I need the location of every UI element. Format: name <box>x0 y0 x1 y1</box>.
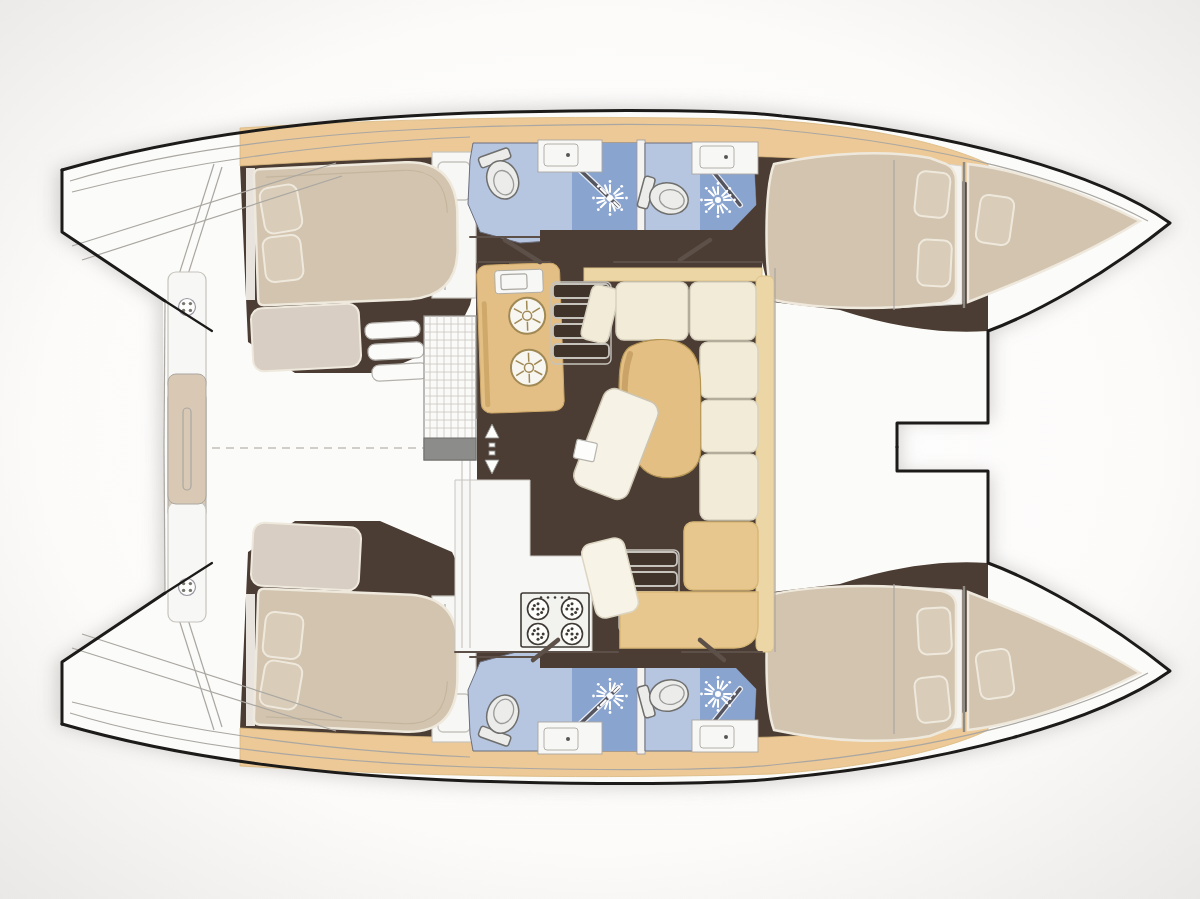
floor-plan-canvas <box>0 0 1200 899</box>
salon <box>455 230 775 668</box>
galley-sink-icon <box>509 297 546 334</box>
sofa-sill <box>584 268 762 281</box>
stool <box>573 439 597 462</box>
galley-sink-icon <box>510 349 547 386</box>
catamaran-floor-plan: { "diagram": { "kind": "catamaran-interi… <box>0 0 1200 899</box>
fridge-grate <box>424 316 476 460</box>
cockpit-steps <box>365 321 429 382</box>
galley-appliance <box>495 269 544 294</box>
stove-4-burner <box>521 593 589 647</box>
